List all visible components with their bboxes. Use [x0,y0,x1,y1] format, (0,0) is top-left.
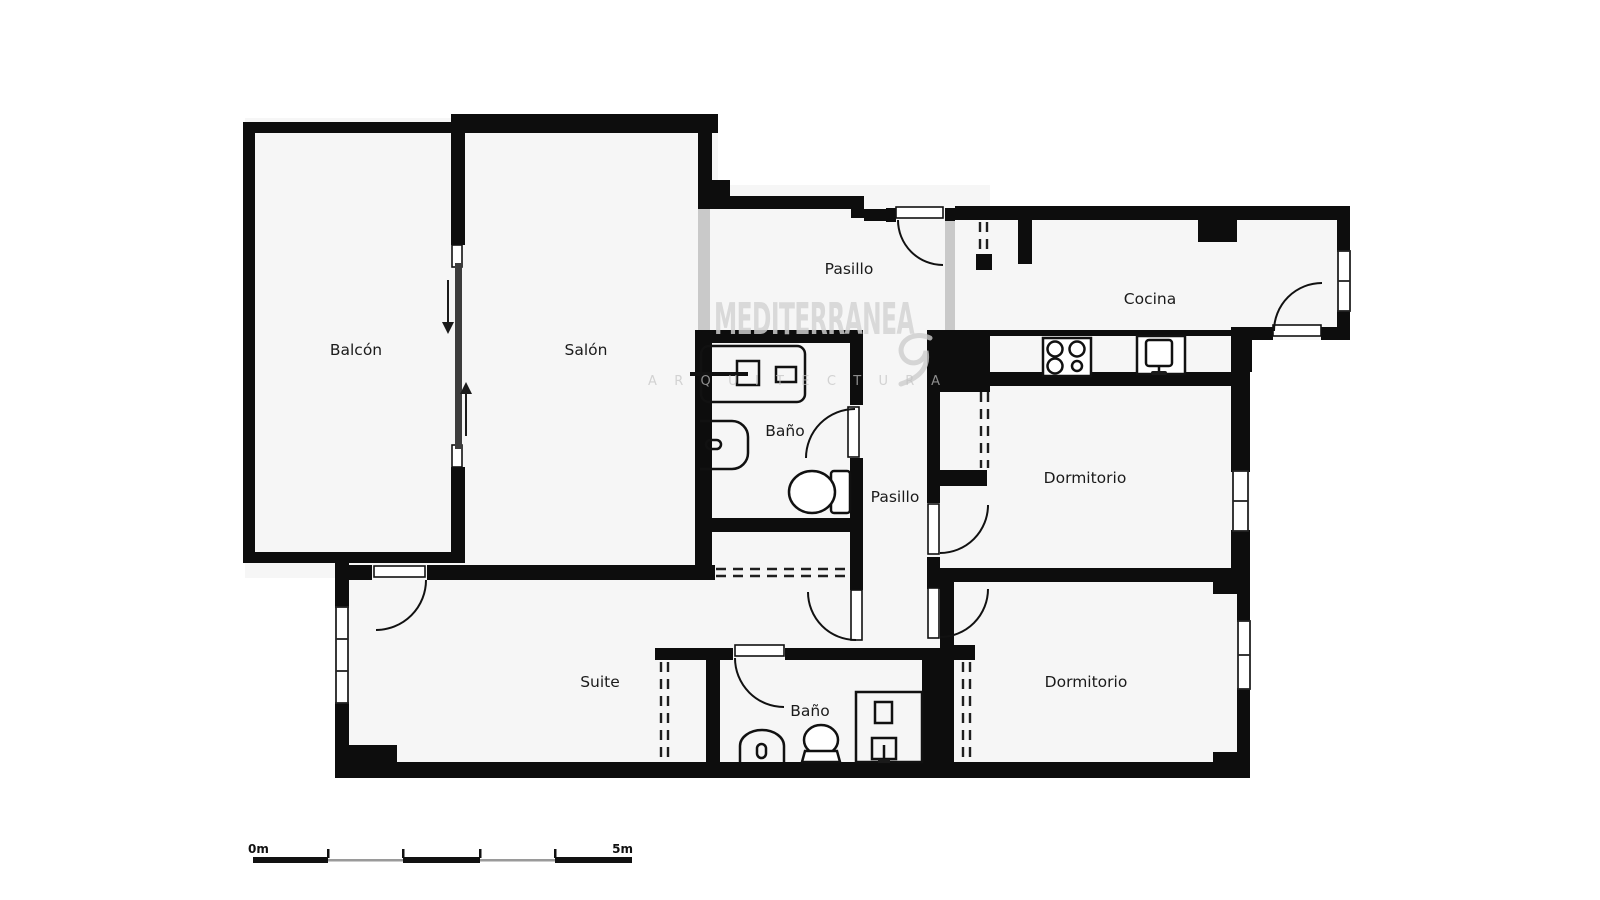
toilet-bottom-icon [802,725,840,762]
watermark-title: MEDITERRANEA [714,294,914,345]
window-dormitorio-mid [1233,471,1248,531]
scale-start-label: 0m [248,842,269,856]
window-cocina [1338,251,1350,311]
toilet-icon [789,471,850,513]
room-label-bano-top: Baño [765,422,804,440]
floor-plan-drawing: MEDITERRANEA ARQUITECTURA Balcón Salón P… [0,0,1600,900]
room-label-dormitorio-bottom: Dormitorio [1045,673,1128,691]
room-label-balcon: Balcón [330,341,382,359]
floor-dormitorios [935,330,1250,775]
floor-cocina [945,206,1350,340]
stove-icon [1043,338,1091,376]
floor-balcon-salon [245,118,718,578]
room-label-cocina: Cocina [1124,290,1176,308]
room-label-salon: Salón [565,341,608,359]
room-label-pasillo-mid: Pasillo [871,488,920,506]
scale-end-label: 5m [612,842,633,856]
glass-partition-salon [698,209,710,330]
kitchen-sink-icon [1137,336,1185,375]
window-dormitorio-bottom [1238,621,1250,689]
floor-suite-bano [335,560,940,775]
room-label-suite: Suite [580,673,620,691]
room-label-pasillo-top: Pasillo [825,260,874,278]
scale-bar: 0m 5m [248,842,633,863]
floor-plan-page: MEDITERRANEA ARQUITECTURA Balcón Salón P… [0,0,1600,900]
window-suite [336,607,348,703]
room-label-bano-bottom: Baño [790,702,829,720]
glass-partition-cocina [945,221,955,330]
room-label-dormitorio-mid: Dormitorio [1044,469,1127,487]
